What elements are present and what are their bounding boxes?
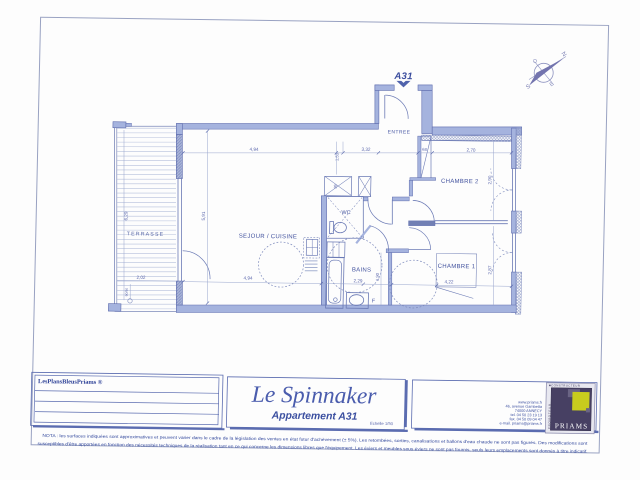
svg-text:2,02: 2,02 xyxy=(137,275,146,280)
svg-text:CHAMBRE 1: CHAMBRE 1 xyxy=(438,264,476,271)
svg-text:Appartement A31: Appartement A31 xyxy=(271,410,358,422)
svg-text:4,94: 4,94 xyxy=(249,147,258,152)
svg-text:ENTREE: ENTREE xyxy=(388,129,411,135)
svg-text:2,70: 2,70 xyxy=(467,148,476,153)
svg-text:2,90: 2,90 xyxy=(487,175,492,184)
svg-text:WC: WC xyxy=(341,210,350,216)
svg-text:BAINS: BAINS xyxy=(352,267,372,273)
svg-text:SEJOUR / CUISINE: SEJOUR / CUISINE xyxy=(239,234,298,241)
svg-text:2,87: 2,87 xyxy=(487,265,492,274)
svg-text:90/90: 90/90 xyxy=(125,288,129,297)
svg-text:Le Spinnaker: Le Spinnaker xyxy=(251,382,378,410)
svg-text:PROMOTEUR: PROMOTEUR xyxy=(547,403,552,429)
svg-text:2,29: 2,29 xyxy=(354,278,363,283)
svg-text:1,53: 1,53 xyxy=(334,152,339,161)
svg-text:CHAMBRE 2: CHAMBRE 2 xyxy=(441,179,479,186)
svg-text:Echelle 1/50: Echelle 1/50 xyxy=(370,421,394,426)
svg-text:38: 38 xyxy=(333,184,337,188)
svg-text:6,29: 6,29 xyxy=(123,211,128,220)
svg-text:PRIAMS: PRIAMS xyxy=(555,422,589,430)
svg-text:4,22: 4,22 xyxy=(445,279,454,284)
svg-text:68: 68 xyxy=(422,147,427,152)
svg-text:e-mail. priams@priams.fr: e-mail. priams@priams.fr xyxy=(500,421,543,426)
svg-text:LesPlansBleusPriams ®: LesPlansBleusPriams ® xyxy=(38,378,103,386)
svg-text:■CONSTRUCTEUR: ■CONSTRUCTEUR xyxy=(549,383,580,387)
svg-text:3,32: 3,32 xyxy=(362,147,371,152)
svg-text:4,94: 4,94 xyxy=(244,276,253,281)
svg-text:TERRASSE: TERRASSE xyxy=(127,231,165,238)
svg-text:5,91: 5,91 xyxy=(201,211,206,220)
svg-text:1,90: 1,90 xyxy=(375,272,380,281)
